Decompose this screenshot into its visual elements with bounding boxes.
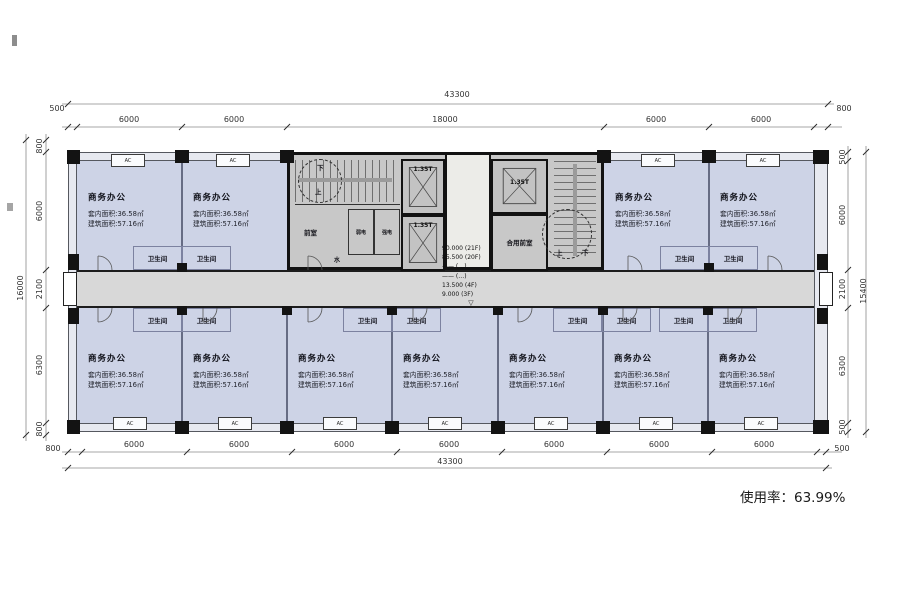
ac-label: AC <box>548 421 555 427</box>
elevator-icon <box>493 161 546 212</box>
stair-up-label: 上 <box>315 188 322 196</box>
room-inner-area: 套内面积:36.58㎡ <box>298 371 354 381</box>
column <box>68 254 79 270</box>
room-name: 商务办公 <box>88 352 144 364</box>
dim-top-seg-3: 18000 <box>423 115 467 125</box>
toilet-room: 卫生间 <box>133 308 182 332</box>
usage-rate: 使用率：63.99% <box>740 486 845 506</box>
dim-bot-seg-5: 6000 <box>532 440 576 450</box>
stray-mark <box>7 203 13 211</box>
dim-left-seg-0: 800 <box>35 124 45 168</box>
dim-bot-seg-7: 6000 <box>742 440 786 450</box>
room-name: 商务办公 <box>719 352 775 364</box>
column <box>280 150 294 163</box>
toilet-label: 卫生间 <box>358 315 378 325</box>
toilet-label: 卫生间 <box>407 315 427 325</box>
ac-niche: AC <box>323 417 357 430</box>
dim-right-overall: 15400 <box>859 269 869 313</box>
room-name: 商务办公 <box>614 352 670 364</box>
toilet-label: 卫生间 <box>674 315 694 325</box>
ac-niche: AC <box>639 417 673 430</box>
dim-left-overall: 16000 <box>16 266 26 310</box>
dim-bot-seg-6: 6000 <box>637 440 681 450</box>
column <box>177 263 187 272</box>
room-inner-area: 套内面积:36.58㎡ <box>88 371 144 381</box>
column <box>704 263 714 272</box>
ac-niche: AC <box>218 417 252 430</box>
room-gross-area: 建筑面积:57.16㎡ <box>193 381 249 391</box>
column <box>67 150 80 164</box>
elevator-shaft-1: 1.35T <box>401 159 445 215</box>
room-name: 商务办公 <box>615 191 671 203</box>
water-label: 水 <box>334 257 340 265</box>
strong-electric-shaft: 强电 <box>374 209 400 255</box>
room-inner-area: 套内面积:36.58㎡ <box>614 371 670 381</box>
toilet-room: 卫生间 <box>553 308 602 332</box>
stair-down-label: 下 <box>317 164 324 172</box>
stair-down-label: 下 <box>582 249 589 257</box>
corridor-end-window-east <box>819 272 833 306</box>
column <box>387 306 397 315</box>
dim-left-seg-2: 2100 <box>35 267 45 311</box>
room-inner-area: 套内面积:36.58㎡ <box>509 371 565 381</box>
toilet-label: 卫生间 <box>197 253 217 263</box>
column <box>596 421 610 434</box>
front-room-label: 前室 <box>304 229 317 237</box>
floor-level: —— (…) <box>442 262 500 271</box>
shared-front-room-label: 合用前室 <box>507 239 533 247</box>
column <box>701 421 715 434</box>
toilet-label: 卫生间 <box>197 315 217 325</box>
toilet-room: 卫生间 <box>709 246 758 270</box>
room-gross-area: 建筑面积:57.16㎡ <box>509 381 565 391</box>
column <box>493 306 503 315</box>
dim-left-seg-3: 6300 <box>35 343 45 387</box>
column <box>817 308 828 324</box>
dim-top-seg-2: 6000 <box>212 115 256 125</box>
toilet-label: 卫生间 <box>568 315 588 325</box>
room-name: 商务办公 <box>88 191 144 203</box>
toilet-label: 卫生间 <box>723 315 743 325</box>
toilet-label: 卫生间 <box>148 315 168 325</box>
column <box>282 306 292 315</box>
dim-left-seg-4: 800 <box>35 407 45 451</box>
weak-electric-shaft: 弱电 <box>348 209 374 255</box>
room-name: 商务办公 <box>193 191 249 203</box>
room-gross-area: 建筑面积:57.16㎡ <box>614 381 670 391</box>
ac-label: AC <box>232 421 239 427</box>
dim-top-seg-1: 6000 <box>107 115 151 125</box>
room-name: 商务办公 <box>298 352 354 364</box>
room-gross-area: 建筑面积:57.16㎡ <box>298 381 354 391</box>
ac-label: AC <box>655 158 662 164</box>
dim-bot-seg-2: 6000 <box>217 440 261 450</box>
toilet-room: 卫生间 <box>602 308 651 332</box>
floor-level-list: 90.000 (21F) 85.500 (20F) —— (…) —— (…) … <box>442 244 500 307</box>
dim-bottom-overall: 43300 <box>428 457 472 467</box>
toilet-room: 卫生间 <box>660 246 709 270</box>
ac-niche: AC <box>534 417 568 430</box>
elevator-label: 1.35T <box>493 179 546 186</box>
partition-wall <box>708 161 710 246</box>
toilet-room: 卫生间 <box>182 308 231 332</box>
ac-label: AC <box>230 158 237 164</box>
ac-niche: AC <box>428 417 462 430</box>
partition-wall <box>497 308 499 423</box>
dim-right-seg-2: 2100 <box>838 267 848 311</box>
floor-level: 13.500 (4F) <box>442 281 500 290</box>
strong-electric-label: 强电 <box>382 229 392 236</box>
room-name: 商务办公 <box>193 352 249 364</box>
dim-top-seg-4: 6000 <box>634 115 678 125</box>
floor-level: 90.000 (21F) <box>442 244 500 253</box>
room-gross-area: 建筑面积:57.16㎡ <box>403 381 459 391</box>
dim-bot-seg-4: 6000 <box>427 440 471 450</box>
dim-top-seg-6: 800 <box>822 104 866 114</box>
dim-right-seg-1: 6000 <box>838 193 848 237</box>
room-inner-area: 套内面积:36.58㎡ <box>403 371 459 381</box>
dim-top-seg-5: 6000 <box>739 115 783 125</box>
toilet-room: 卫生间 <box>659 308 708 332</box>
column <box>175 150 189 163</box>
floor-level: —— (…) <box>442 272 500 281</box>
dim-top-seg-0: 500 <box>35 104 79 114</box>
column <box>280 421 294 434</box>
room-gross-area: 建筑面积:57.16㎡ <box>88 220 144 230</box>
room-name: 商务办公 <box>403 352 459 364</box>
core-partition <box>295 204 400 205</box>
toilet-room: 卫生间 <box>392 308 441 332</box>
dim-right-seg-0: 500 <box>838 135 848 179</box>
column <box>817 254 828 270</box>
room-inner-area: 套内面积:36.58㎡ <box>193 371 249 381</box>
column <box>67 420 80 434</box>
room-inner-area: 套内面积:36.58㎡ <box>719 371 775 381</box>
room-inner-area: 套内面积:36.58㎡ <box>193 210 249 220</box>
stair-up-label: 上 <box>556 249 563 257</box>
dim-right-seg-4: 500 <box>838 405 848 449</box>
room-gross-area: 建筑面积:57.16㎡ <box>193 220 249 230</box>
room-inner-area: 套内面积:36.58㎡ <box>88 210 144 220</box>
elevator-label: 1.35T <box>403 222 443 229</box>
toilet-room: 卫生间 <box>133 246 182 270</box>
column <box>597 150 611 163</box>
toilet-label: 卫生间 <box>724 253 744 263</box>
ac-niche: AC <box>216 154 250 167</box>
elevator-shaft-2: 1.35T <box>401 215 445 271</box>
partition-wall <box>181 161 183 246</box>
room-gross-area: 建筑面积:57.16㎡ <box>88 381 144 391</box>
building-plan: 商务办公套内面积:36.58㎡建筑面积:57.16㎡ 商务办公套内面积:36.5… <box>68 152 828 432</box>
column <box>813 420 829 434</box>
ac-label: AC <box>760 158 767 164</box>
ac-label: AC <box>127 421 134 427</box>
floor-plan-canvas: 43300 500 6000 6000 18000 6000 6000 800 … <box>0 0 900 600</box>
dim-bot-seg-3: 6000 <box>322 440 366 450</box>
toilet-room: 卫生间 <box>708 308 757 332</box>
room-gross-area: 建筑面积:57.16㎡ <box>615 220 671 230</box>
toilet-label: 卫生间 <box>675 253 695 263</box>
ac-label: AC <box>758 421 765 427</box>
elevator-label: 1.35T <box>403 166 443 173</box>
column <box>175 421 189 434</box>
ac-niche: AC <box>744 417 778 430</box>
toilet-room: 卫生间 <box>182 246 231 270</box>
ac-label: AC <box>125 158 132 164</box>
toilet-label: 卫生间 <box>148 253 168 263</box>
column <box>702 150 716 163</box>
room-inner-area: 套内面积:36.58㎡ <box>720 210 776 220</box>
weak-electric-label: 弱电 <box>356 229 366 236</box>
dim-bot-seg-1: 6000 <box>112 440 156 450</box>
floor-level: 85.500 (20F) <box>442 253 500 262</box>
stray-mark <box>12 35 17 46</box>
column <box>703 306 713 315</box>
column <box>813 150 829 164</box>
column <box>385 421 399 434</box>
room-gross-area: 建筑面积:57.16㎡ <box>720 220 776 230</box>
room-name: 商务办公 <box>720 191 776 203</box>
floor-level: 9.000 (3F) <box>442 290 500 299</box>
ac-niche: AC <box>641 154 675 167</box>
column <box>68 308 79 324</box>
ac-label: AC <box>337 421 344 427</box>
ac-label: AC <box>442 421 449 427</box>
ac-label: AC <box>653 421 660 427</box>
dim-right-seg-3: 6300 <box>838 344 848 388</box>
ac-niche: AC <box>746 154 780 167</box>
partition-wall <box>286 308 288 423</box>
room-inner-area: 套内面积:36.58㎡ <box>615 210 671 220</box>
dim-left-seg-1: 6000 <box>35 189 45 233</box>
column <box>491 421 505 434</box>
column <box>177 306 187 315</box>
dim-top-overall: 43300 <box>435 90 479 100</box>
ac-niche: AC <box>111 154 145 167</box>
room-gross-area: 建筑面积:57.16㎡ <box>719 381 775 391</box>
column <box>598 306 608 315</box>
level-marker-icon: ▽ <box>442 299 500 307</box>
room-name: 商务办公 <box>509 352 565 364</box>
elevator-shaft-3: 1.35T <box>491 159 548 214</box>
corridor-end-window-west <box>63 272 77 306</box>
ac-niche: AC <box>113 417 147 430</box>
toilet-label: 卫生间 <box>617 315 637 325</box>
toilet-room: 卫生间 <box>343 308 392 332</box>
